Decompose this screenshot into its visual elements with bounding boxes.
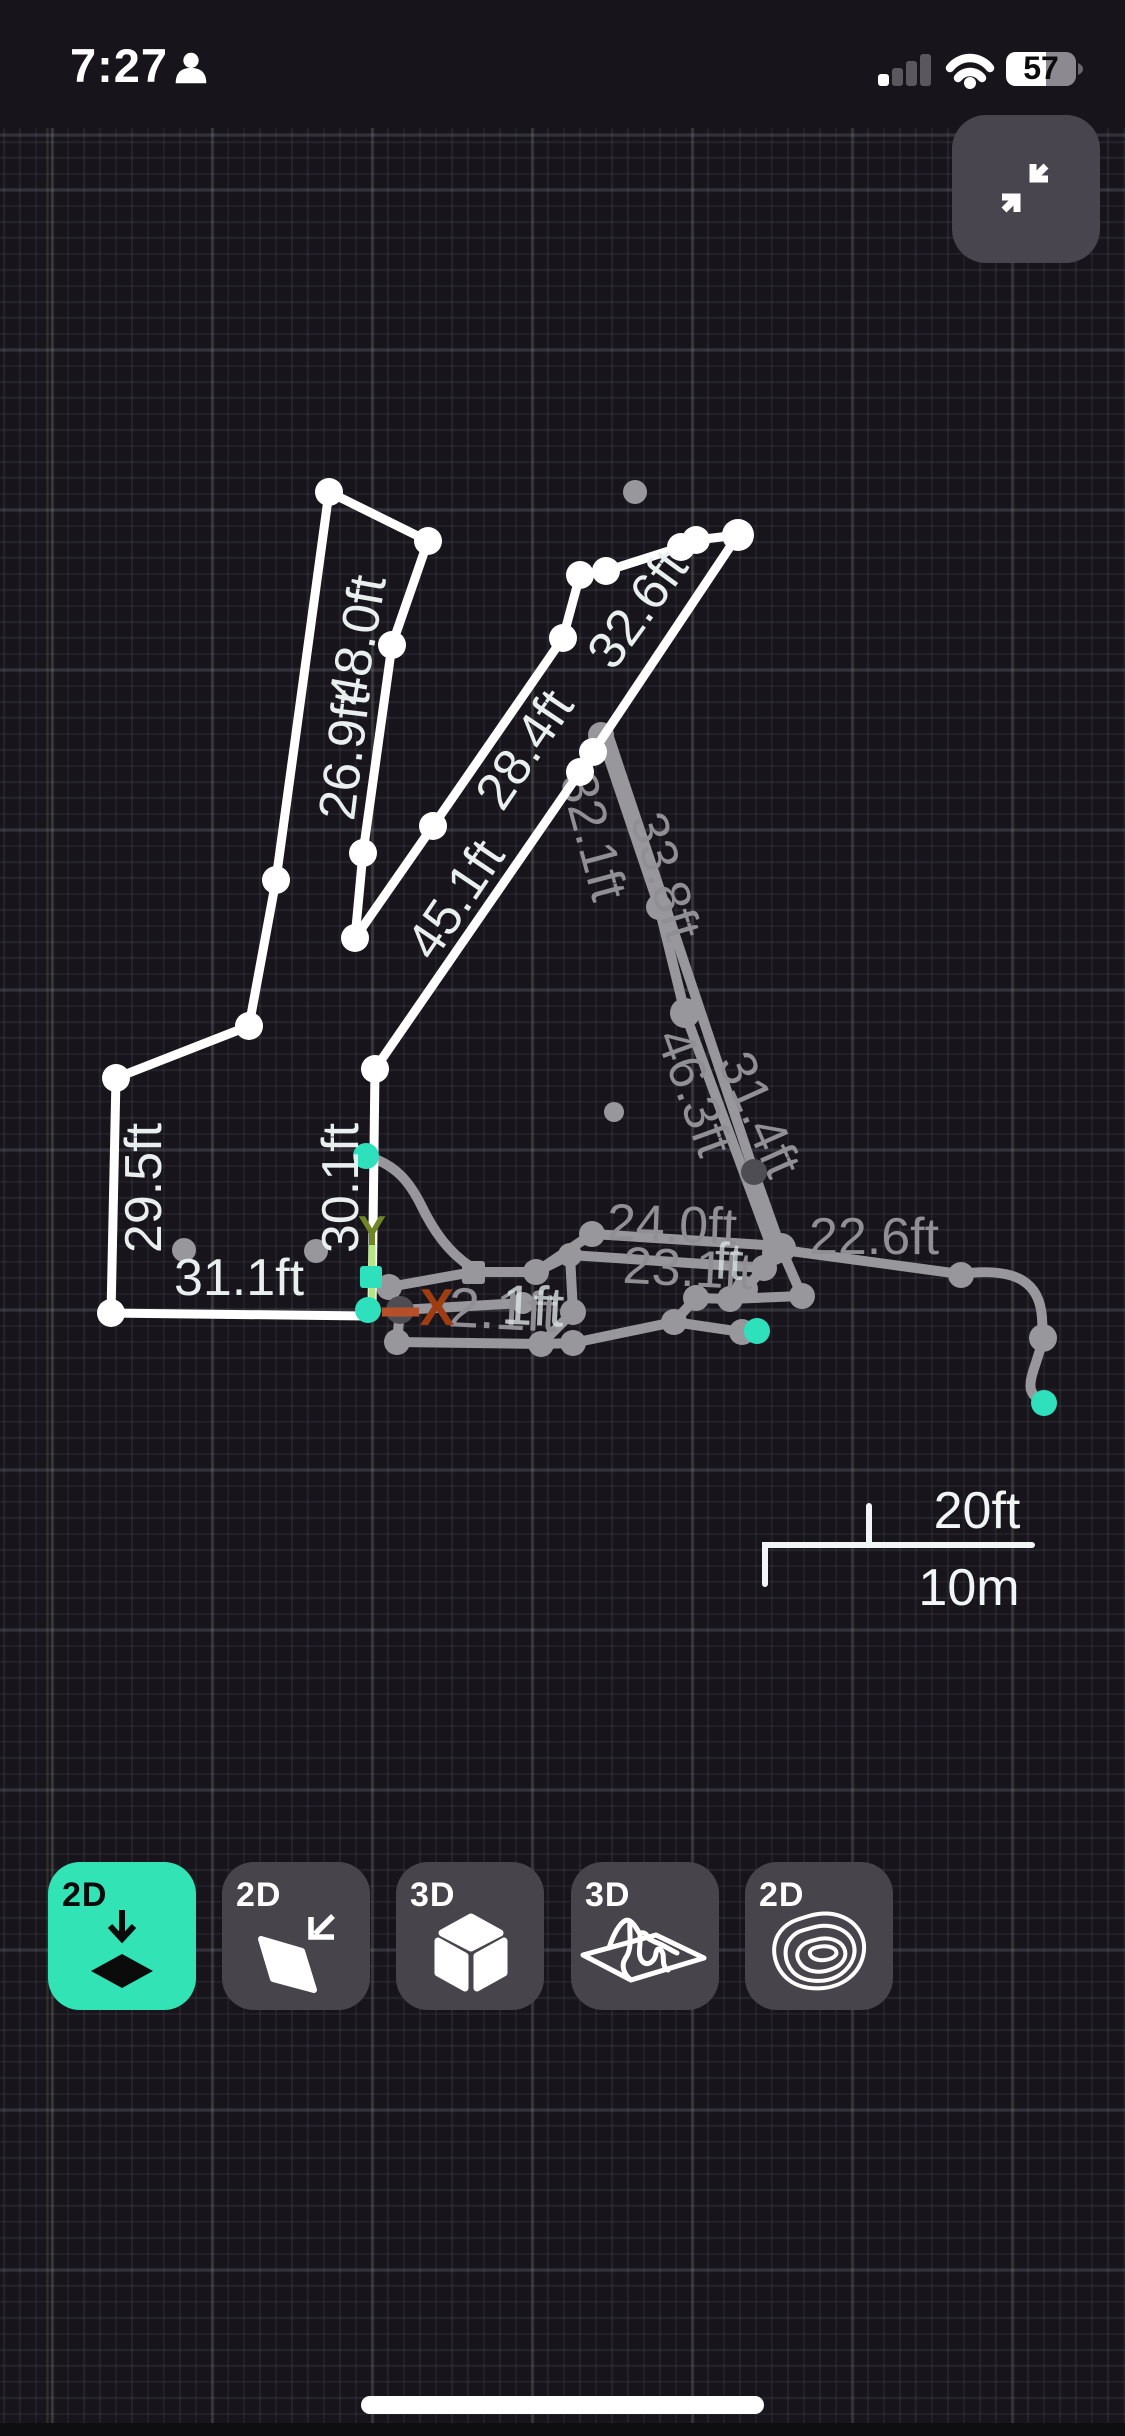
svg-text:ft: ft [713, 1232, 745, 1291]
svg-text:31.1ft: 31.1ft [174, 1249, 305, 1307]
svg-text:1ft: 1ft [500, 1272, 566, 1338]
svg-text:30.1ft: 30.1ft [312, 1122, 370, 1253]
svg-text:57: 57 [1023, 50, 1059, 86]
svg-text:X: X [420, 1279, 455, 1337]
svg-text:22.6ft: 22.6ft [809, 1208, 940, 1266]
svg-text:29.5ft: 29.5ft [115, 1122, 173, 1253]
svg-text:20ft: 20ft [934, 1482, 1021, 1540]
svg-text:10m: 10m [918, 1559, 1019, 1617]
